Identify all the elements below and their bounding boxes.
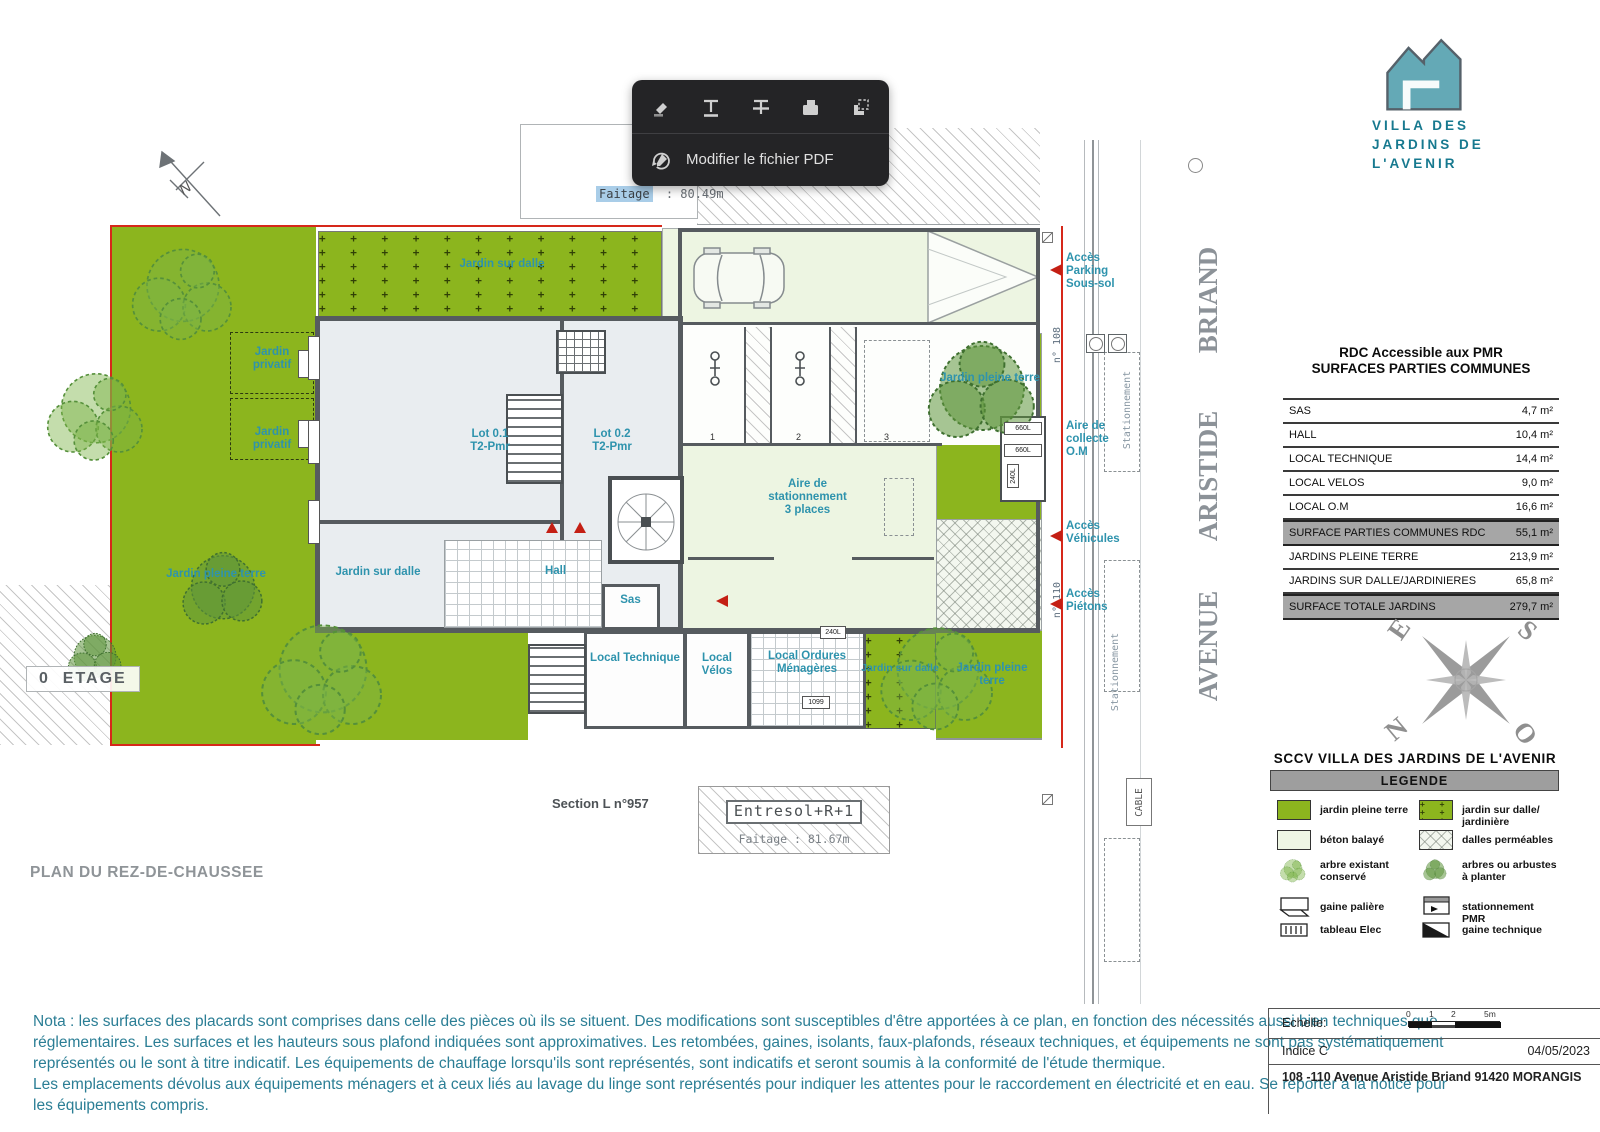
legend-item-label: arbre existant conservé (1320, 860, 1400, 883)
hall-floor (444, 540, 602, 628)
edit-pdf-icon (648, 147, 674, 173)
legend-item-label: tableau Elec (1320, 925, 1412, 937)
compass-east: E (1381, 613, 1416, 645)
row-label: LOCAL VELOS (1289, 477, 1364, 489)
green-plus-swatch: + + + + + + + + + + + + + + + + + + + + … (1419, 800, 1453, 820)
jardin-sur-dalle-top: + + + + + + + + + + + + + + + + + + + + … (318, 231, 662, 317)
scale-tick: 0 (1406, 1009, 1411, 1019)
row-value: 4,7 m² (1522, 405, 1553, 417)
window (308, 500, 320, 544)
local-technique-room (584, 631, 686, 729)
staircase (528, 644, 586, 714)
notes-line: représentés ou le sont à titre indicatif… (33, 1055, 1265, 1076)
tree-icon (118, 235, 248, 355)
legend-item-label: dalles perméables (1462, 835, 1558, 847)
label-jardin-sur-dalle: Jardin sur dalle (330, 566, 426, 579)
label-sas: Sas (608, 594, 653, 607)
compass-south: S (1512, 614, 1543, 647)
table-row-total: SURFACE PARTIES COMMUNES RDC55,1 m² (1283, 520, 1559, 546)
row-value: 213,9 m² (1510, 551, 1553, 563)
row-label: SAS (1289, 405, 1311, 417)
modify-pdf-label: Modifier le fichier PDF (686, 151, 834, 168)
wall-segment (319, 520, 563, 524)
green-swatch (1277, 800, 1311, 820)
row-label: JARDINS PLEINE TERRE (1289, 551, 1418, 563)
highlighter-icon[interactable] (648, 94, 674, 120)
echelle-label: Echelle: (1282, 1016, 1326, 1030)
scale-tick: 5m (1484, 1009, 1496, 1019)
surfaces-table: SAS4,7 m² HALL10,4 m² LOCAL TECHNIQUE14,… (1283, 398, 1559, 620)
label-hall: Hall (528, 565, 583, 578)
select-area-icon[interactable] (847, 94, 873, 120)
legend-item-label: jardin sur dalle/ jardinière (1462, 805, 1558, 828)
row-label: HALL (1289, 429, 1317, 441)
pale-swatch (1277, 830, 1311, 850)
staircase (556, 330, 606, 374)
legend-item-label: arbres ou arbustes à planter (1462, 860, 1558, 883)
cable-box: CABLE (1126, 778, 1152, 826)
redact-icon[interactable] (797, 94, 823, 120)
north-arrow-sketch: N (146, 140, 230, 224)
row-label: JARDINS SUR DALLE/JARDINIERES (1289, 575, 1476, 587)
table-row: LOCAL TECHNIQUE14,4 m² (1283, 448, 1559, 472)
text-underline-icon[interactable] (698, 94, 724, 120)
legend-item-label: béton balayé (1320, 835, 1412, 847)
plus-pattern: + + + + + + + + + + + + + + + + + + + + … (319, 232, 661, 316)
logo-wordmark: VILLA DES JARDINS DE L'AVENIR (1372, 116, 1484, 173)
entrance-arrow (546, 522, 558, 533)
table-row: JARDINS PLEINE TERRE213,9 m² (1283, 546, 1559, 570)
notes-line: réglementaires. Les surfaces et les haut… (33, 1034, 1265, 1055)
label-jardin-privatif: Jardin privatif (234, 346, 310, 372)
label-jardin-pleine-terre: Jardin pleine terre (166, 568, 266, 581)
table-row: HALL10,4 m² (1283, 424, 1559, 448)
gaine-technique-icon (1419, 921, 1453, 939)
label-cable: CABLE (1134, 788, 1145, 817)
label-jardin-sur-dalle: Jardin sur dalle (860, 662, 940, 675)
collection-point-icon (1086, 334, 1105, 353)
tree-light-icon (1277, 856, 1309, 886)
spiral-staircase (608, 476, 684, 564)
label-stationnement: Stationnement (1110, 622, 1122, 722)
scale-tick: 1 (1429, 1009, 1434, 1019)
label-lot2: Lot 0.2T2-Pmr (570, 428, 654, 454)
compass-north: N (1379, 711, 1414, 747)
pdf-preview-page: + + + + + + + + + + + + + + + + + + + + … (0, 0, 1600, 1132)
street-name-aristide: ARISTIDE (1193, 401, 1223, 551)
table-row: LOCAL VELOS9,0 m² (1283, 472, 1559, 496)
notes-line: Les emplacements dévolus aux équipements… (33, 1076, 1265, 1097)
tableau-elec-icon (1277, 921, 1311, 939)
logo-line3: L'AVENIR (1372, 154, 1484, 173)
logo-line2: JARDINS DE (1372, 135, 1484, 154)
tree-dark-icon (1419, 856, 1451, 886)
table-title-line2: SURFACES PARTIES COMMUNES (1283, 361, 1559, 376)
title-block-line (1268, 1038, 1600, 1039)
etage-label: 0 ETAGE (26, 666, 140, 692)
label-jardin-privatif: Jardin privatif (234, 426, 310, 452)
faitage-value: : 80.49m (666, 187, 724, 201)
table-row: JARDINS SUR DALLE/JARDINIERES65,8 m² (1283, 570, 1559, 594)
om-box-1099: 1099 (802, 696, 830, 709)
label-aire-stationnement: Aire destationnement3 places (750, 478, 865, 517)
surfaces-table-title: RDC Accessible aux PMR SURFACES PARTIES … (1283, 345, 1559, 376)
access-arrow (1050, 530, 1062, 542)
survey-marker-icon (1042, 794, 1053, 805)
page-title: PLAN DU REZ-DE-CHAUSSEE (30, 864, 264, 882)
gaine-paliere-icon (1277, 896, 1313, 918)
local-om-room (748, 631, 866, 729)
access-arrow (1050, 264, 1062, 276)
survey-circle-icon (1188, 158, 1203, 173)
scale-bar (1408, 1021, 1500, 1027)
bay-number: 1 (710, 432, 715, 442)
label-acces-pietons: Accès Piétons (1066, 588, 1121, 614)
row-label: SURFACE PARTIES COMMUNES RDC (1289, 527, 1485, 539)
modify-pdf-button[interactable]: Modifier le fichier PDF (632, 134, 889, 185)
pdf-edit-toolbar: Modifier le fichier PDF (632, 80, 889, 186)
title-block-line (1268, 1008, 1600, 1009)
compass-rose: E S N O (1366, 608, 1566, 750)
row-label: LOCAL TECHNIQUE (1289, 453, 1392, 465)
label-aire-collecte: Aire de collecte O.M (1066, 420, 1121, 459)
notes-line: les équipements compris. (33, 1097, 1265, 1118)
notes-line: Nota : les surfaces des placards sont co… (33, 1013, 1265, 1034)
legend-item-label: stationnement PMR (1462, 902, 1558, 925)
street-name-avenue: AVENUE (1193, 571, 1223, 721)
svg-text:N: N (176, 178, 195, 198)
direction-arrow (716, 595, 728, 607)
scale-tick: 2 (1451, 1009, 1456, 1019)
date-label: 04/05/2023 (1470, 1044, 1590, 1058)
crosshatch-swatch (1419, 830, 1453, 850)
bay-number: 3 (884, 432, 889, 442)
table-title-line1: RDC Accessible aux PMR (1283, 345, 1559, 360)
om-box-240: 240L (820, 626, 846, 639)
entresol-faitage: Faitage : 81.67m (698, 832, 890, 846)
label-lot1: Lot 0.1T2-Pmr (448, 428, 532, 454)
wall-segment (682, 443, 942, 446)
bin-660: 660L (1004, 444, 1042, 457)
scale-bar-segment (1409, 1022, 1432, 1028)
notes: Nota : les surfaces des placards sont co… (33, 1013, 1265, 1118)
legend-title: SCCV VILLA DES JARDINS DE L'AVENIR (1270, 751, 1560, 766)
logo-line1: VILLA DES (1372, 116, 1484, 135)
tree-icon (36, 360, 156, 475)
survey-marker-icon (1042, 232, 1053, 243)
label-local-velos: Local Vélos (686, 652, 748, 678)
row-value: 16,6 m² (1516, 501, 1553, 513)
bin-240: 240L (1007, 464, 1019, 488)
label-jardin-sur-dalle: Jardin sur dalle (452, 258, 552, 271)
row-value: 55,1 m² (1516, 527, 1553, 539)
street-parking-bay (1104, 838, 1140, 962)
scale-bar-segment (1432, 1025, 1455, 1028)
pmr-icon (1419, 896, 1453, 916)
faitage-annotation: Faitage : 80.49m (596, 187, 724, 201)
legend-item-label: gaine palière (1320, 902, 1412, 914)
legend-item-label: jardin pleine terre (1320, 805, 1412, 817)
title-block-divider (1268, 1008, 1269, 1114)
property-line (1061, 226, 1063, 748)
scale-bar-segment (1455, 1022, 1501, 1028)
row-value: 14,4 m² (1516, 453, 1553, 465)
street-name-briand: BRIAND (1193, 225, 1223, 375)
bin-660: 660L (1004, 422, 1042, 435)
table-row: SAS4,7 m² (1283, 400, 1559, 424)
row-label: LOCAL O.M (1289, 501, 1349, 513)
street-edge-line (1140, 140, 1141, 1004)
logo-icon (1374, 26, 1470, 112)
property-line (110, 225, 662, 227)
faitage-highlighted-text[interactable]: Faitage (596, 186, 653, 202)
compass-west: O (1507, 716, 1544, 750)
legend-item-label: gaine technique (1462, 925, 1558, 937)
address-label: 108 -110 Avenue Aristide Briand 91420 MO… (1282, 1070, 1581, 1084)
plus-pattern: + + + + + + + + + + + + + + + + + + + + … (1420, 801, 1452, 819)
label-local-om: Local Ordures Ménagères (752, 650, 862, 676)
collection-point-icon (1108, 334, 1127, 353)
title-block-line (1268, 1064, 1600, 1065)
table-row: LOCAL O.M16,6 m² (1283, 496, 1559, 520)
label-acces-parking: Accès Parking Sous-sol (1066, 252, 1128, 291)
label-jardin-pleine-terre: Jardin pleine terre (940, 372, 1040, 385)
label-stationnement: Stationnement (1122, 360, 1134, 460)
bay-number: 2 (796, 432, 801, 442)
tree-icon (248, 608, 398, 753)
row-value: 10,4 m² (1516, 429, 1553, 441)
label-acces-vehicules: Accès Véhicules (1066, 520, 1136, 546)
text-strikethrough-icon[interactable] (748, 94, 774, 120)
entrance-arrow (574, 522, 586, 533)
local-velos-room (684, 631, 750, 729)
label-jardin-pleine-terre: Jardin pleine terre (946, 662, 1038, 688)
entresol-label: Entresol+R+1 (726, 800, 862, 824)
row-value: 65,8 m² (1516, 575, 1553, 587)
sas-room (602, 584, 660, 630)
row-value: 9,0 m² (1522, 477, 1553, 489)
indice-label: Indice C (1282, 1044, 1328, 1058)
section-label: Section L n°957 (552, 796, 692, 811)
legend-header: LEGENDE (1270, 770, 1559, 791)
label-local-technique: Local Technique (586, 652, 684, 665)
access-arrow (1050, 598, 1062, 610)
